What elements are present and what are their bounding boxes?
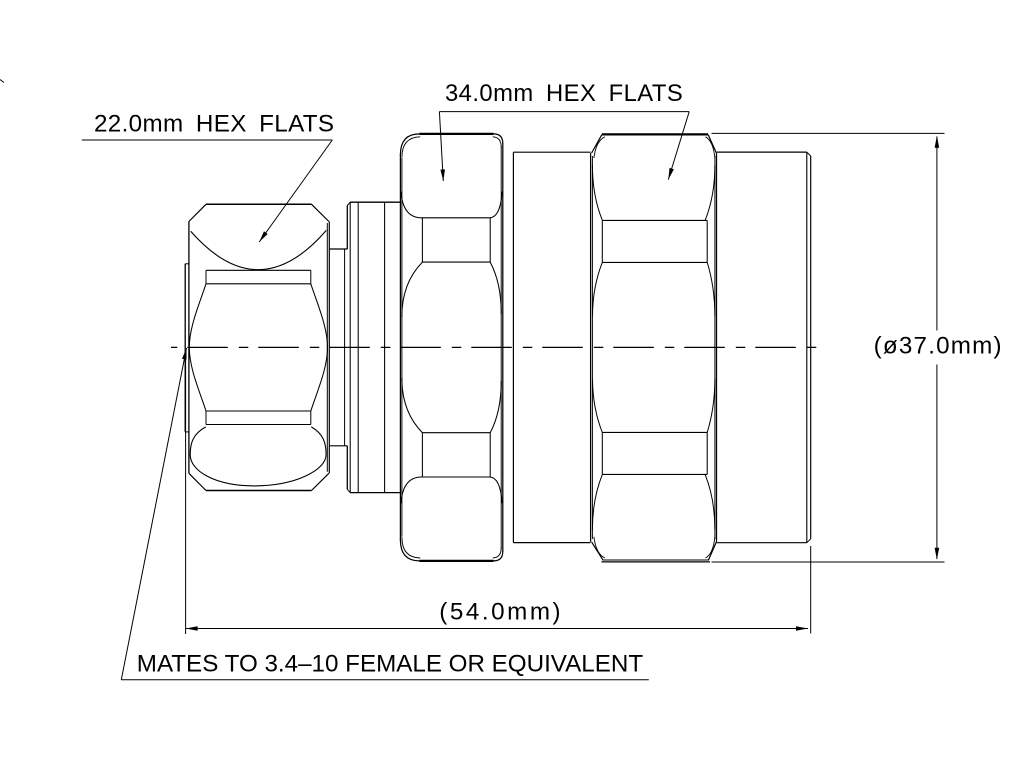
svg-text:MATES TO 3.4–10 FEMALE OR EQUI: MATES TO 3.4–10 FEMALE OR EQUIVALENT <box>137 650 644 677</box>
svg-text:(54.0mm): (54.0mm) <box>439 598 563 625</box>
svg-text:(ø37.0mm): (ø37.0mm) <box>874 332 1003 359</box>
svg-text:34.0mm HEX FLATS: 34.0mm HEX FLATS <box>445 80 683 107</box>
svg-text:22.0mm HEX FLATS: 22.0mm HEX FLATS <box>94 111 334 138</box>
